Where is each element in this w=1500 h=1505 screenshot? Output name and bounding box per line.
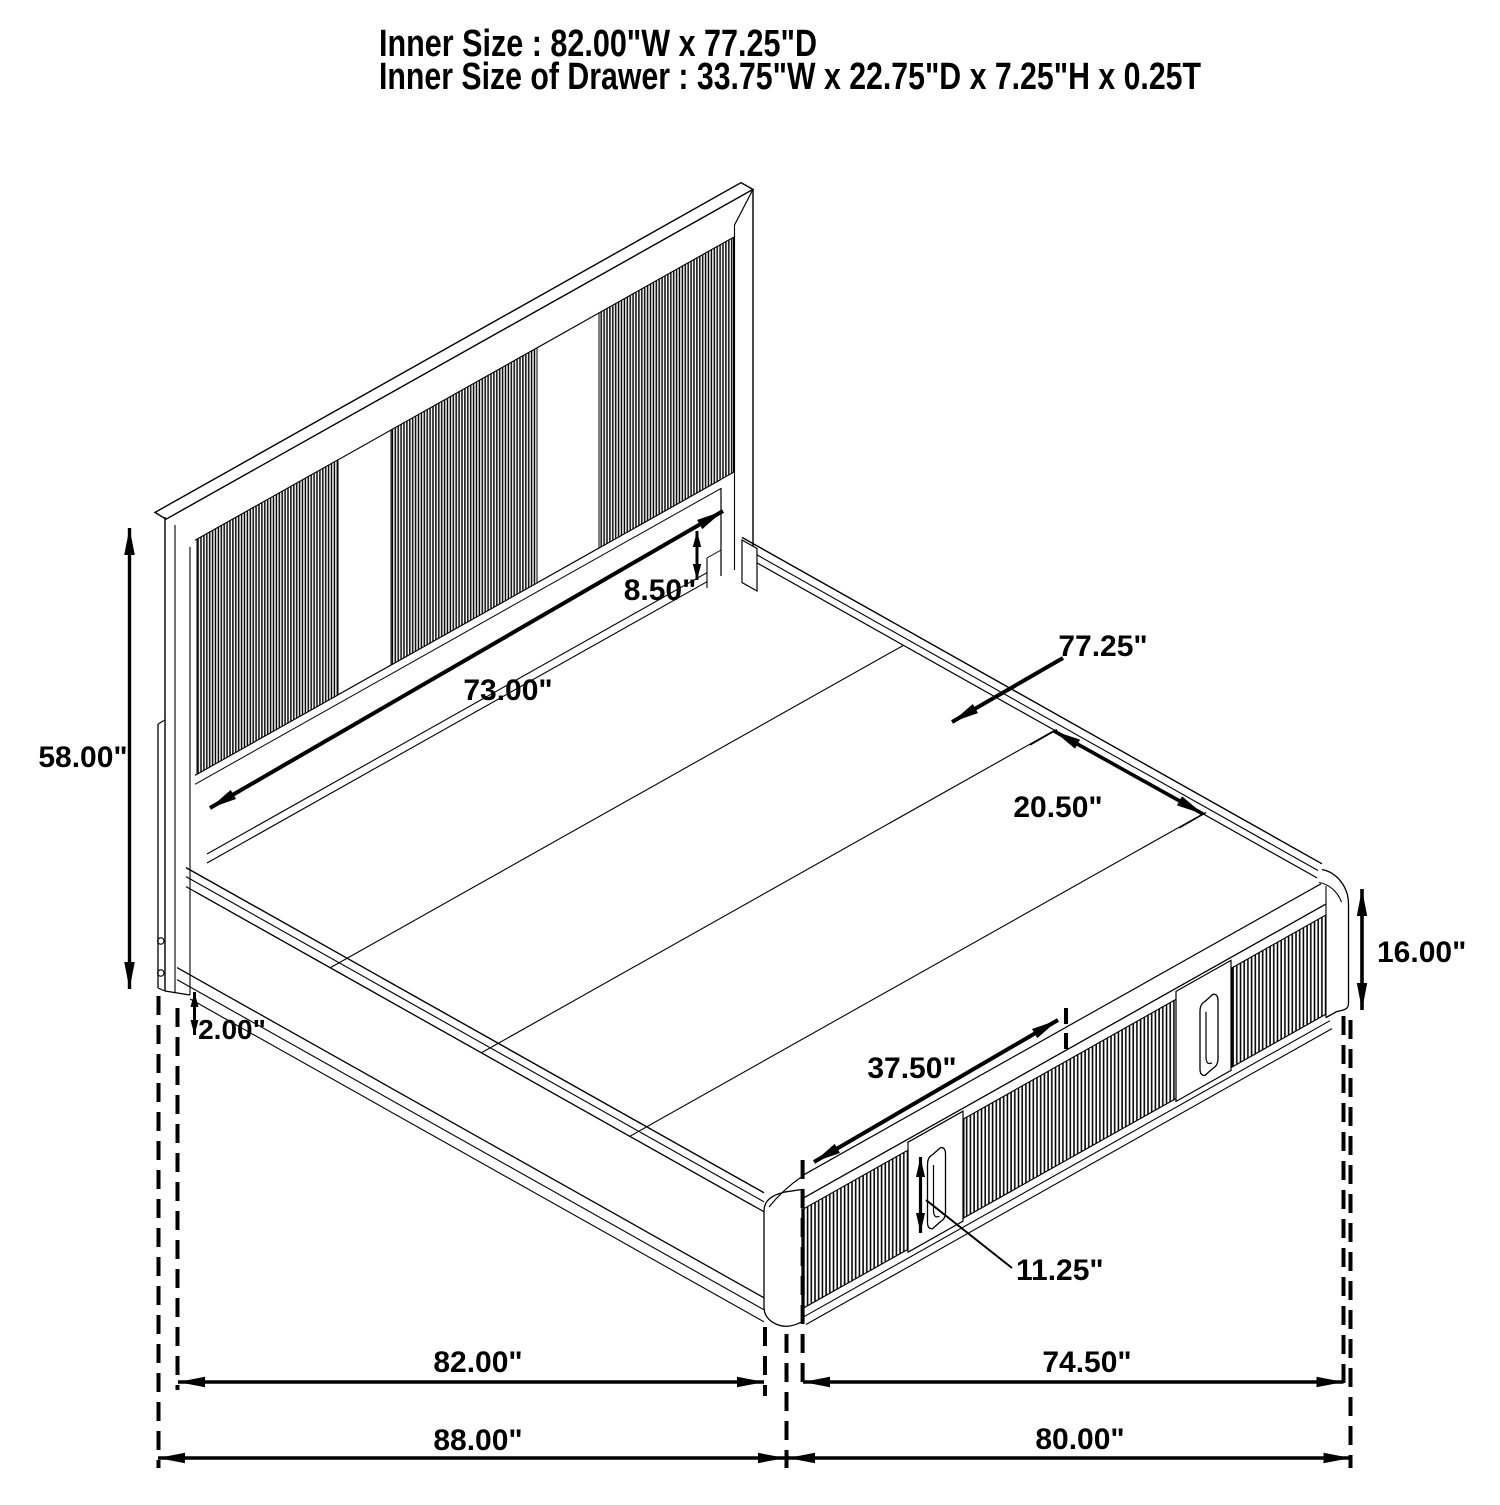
svg-text:73.00": 73.00" [463, 674, 552, 707]
svg-text:88.00": 88.00" [433, 1424, 522, 1457]
svg-text:2.00": 2.00" [198, 1014, 266, 1045]
svg-text:77.25": 77.25" [1058, 630, 1147, 663]
svg-text:8.50": 8.50" [624, 574, 697, 607]
svg-text:Inner Size of Drawer : 33.75"W: Inner Size of Drawer : 33.75"W x 22.75"D… [379, 56, 1201, 98]
svg-text:37.50": 37.50" [867, 1052, 956, 1085]
svg-text:16.00": 16.00" [1377, 936, 1466, 969]
svg-text:80.00": 80.00" [1035, 1423, 1124, 1456]
svg-text:58.00": 58.00" [38, 741, 127, 774]
svg-text:74.50": 74.50" [1042, 1346, 1131, 1379]
svg-text:82.00": 82.00" [433, 1346, 522, 1379]
svg-text:20.50": 20.50" [1013, 791, 1102, 824]
svg-text:11.25": 11.25" [1016, 1254, 1104, 1287]
